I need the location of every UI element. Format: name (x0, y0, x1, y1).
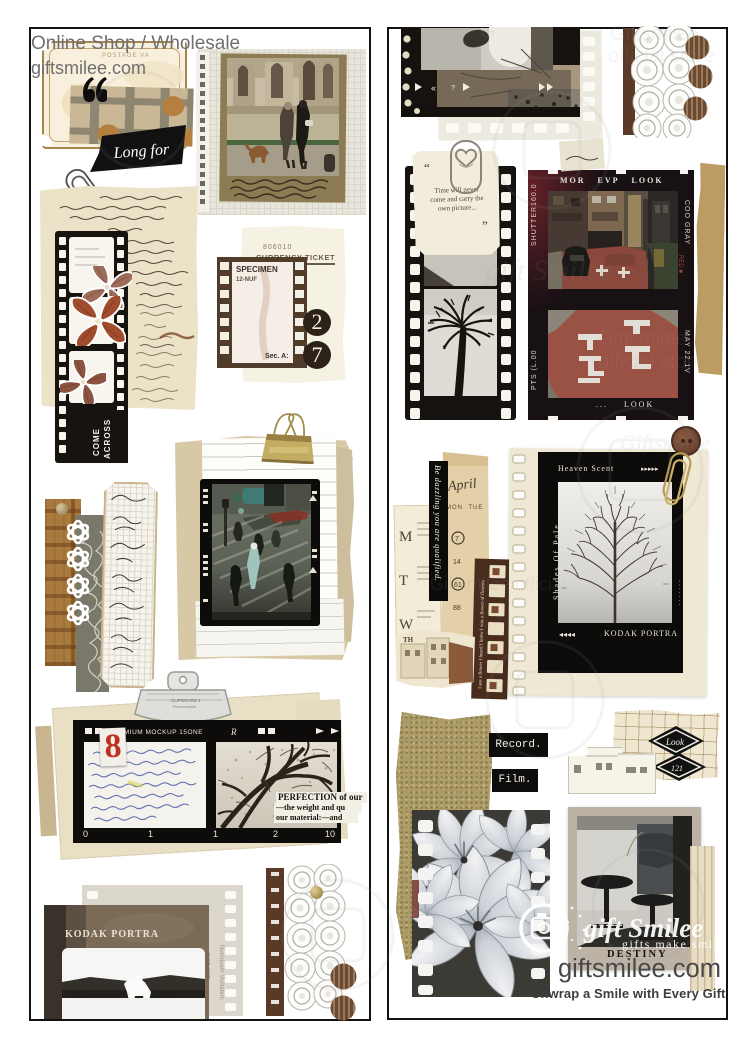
svg-text:Giftsmilee: Giftsmilee (610, 23, 699, 45)
svg-text:gift Smilee: gift Smilee (485, 254, 612, 287)
svg-text:Giftsmilee official: Giftsmilee official (430, 574, 566, 594)
svg-text:official store: official store (608, 45, 714, 67)
svg-text:G: G (480, 21, 496, 43)
svg-text:Giftsmilee: Giftsmilee (598, 328, 687, 350)
svg-text:gifts make smile: gifts make smile (622, 937, 725, 951)
svg-text:Giftsmilee: Giftsmilee (620, 430, 711, 455)
svg-text:official store: official store (598, 351, 704, 373)
